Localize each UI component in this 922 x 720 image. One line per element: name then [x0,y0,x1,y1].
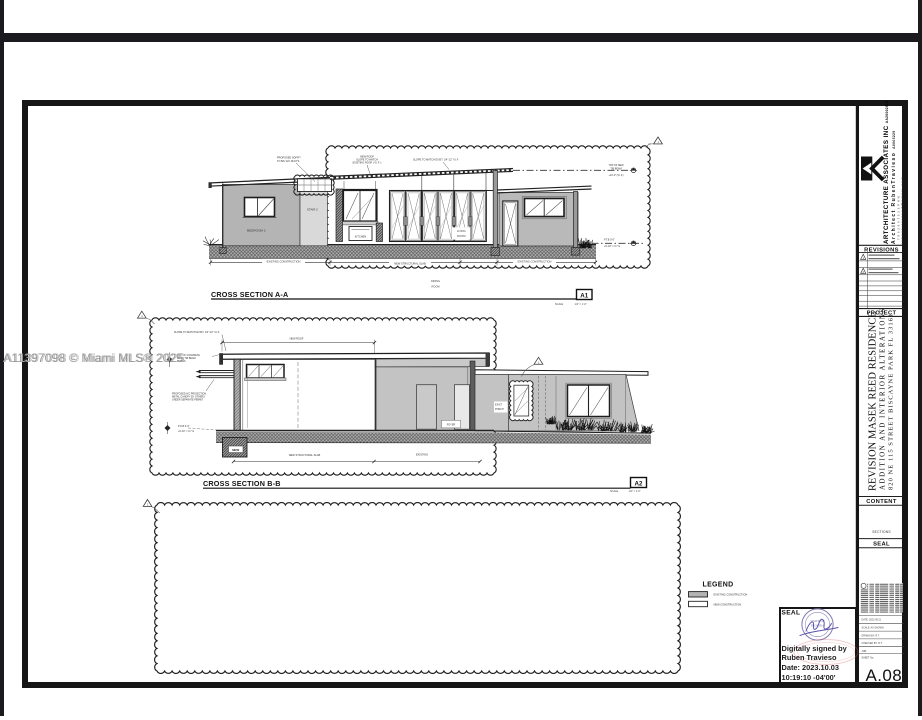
svg-text:JOB:: JOB: [862,650,868,653]
svg-text:NEW: NEW [232,448,239,452]
svg-text:SLOPE TO MATCH EXIST. 1/4":12: SLOPE TO MATCH EXIST. 1/4":12" V.I.F. [413,159,459,162]
svg-text:EXISTING CONSTRUCTION: EXISTING CONSTRUCTION [714,593,748,597]
svg-text:LIVING: LIVING [457,229,466,233]
svg-text:EXISTING: EXISTING [416,452,428,456]
svg-text:KITCHEN: KITCHEN [355,234,367,238]
svg-text:+9'-10" = 0.7 G: +9'-10" = 0.7 G [604,245,620,248]
svg-text:BEDROOM 2: BEDROOM 2 [247,229,266,233]
svg-text:SCALE: AS SHOWN: SCALE: AS SHOWN [862,627,884,630]
svg-text:EXISTING ROOF ( V.I.F. ): EXISTING ROOF ( V.I.F. ) [353,162,382,165]
svg-text:SECTIONS: SECTIONS [872,530,891,534]
svg-text:820 NE 115 STREET BISCAYNE PAR: 820 NE 115 STREET BISCAYNE PARK FL 33161 [888,313,895,490]
svg-text:ROOM: ROOM [457,234,466,238]
svg-text:ARTCHITECTURE ASSOCIATES INC A: ARTCHITECTURE ASSOCIATES INC AA26002974 [883,101,890,244]
svg-text:A.08: A.08 [866,666,903,685]
svg-text:SLOPE TO MATCH EXIST. 1/4":12: SLOPE TO MATCH EXIST. 1/4":12" V.I.F. [174,331,220,334]
svg-text:SHEET No:: SHEET No: [862,657,875,660]
svg-text:ADDITION AND INTERIOR ALTERATI: ADDITION AND INTERIOR ALTERATIONS [879,307,887,490]
svg-text:P.O.B 0'-0": P.O.B 0'-0" [178,425,190,428]
svg-text:TO B/U A/C DUCTS: TO B/U A/C DUCTS [277,160,300,163]
svg-text:SCALE: SCALE [610,490,619,493]
svg-text:A1: A1 [580,292,588,299]
svg-text:UNDER SEPARATE PERMIT: UNDER SEPARATE PERMIT [172,399,204,402]
svg-text:CROSS SECTION A-A: CROSS SECTION A-A [211,290,288,299]
svg-text:EXIST: EXIST [495,404,502,407]
svg-text:EXISTING CONSTRUCTION: EXISTING CONSTRUCTION [267,260,301,264]
svg-text:PORCH: PORCH [495,408,504,411]
svg-text:DINING: DINING [431,279,440,283]
svg-text:CONTENT: CONTENT [866,499,897,505]
svg-text:T/B BEAM: T/B BEAM [610,167,621,170]
svg-text:+9'-10" = 0.7 G: +9'-10" = 0.7 G [178,430,194,433]
svg-text:DATE: 2023.09.21: DATE: 2023.09.21 [862,619,882,622]
svg-text:SEAL: SEAL [873,542,890,548]
svg-text:LEGEND: LEGEND [703,581,734,588]
svg-text:r u b e n t r a v i e s o 7 @: r u b e n t r a v i e s o 7 @ g m a i l … [900,177,904,244]
svg-text:NEW ROOF: NEW ROOF [290,338,304,341]
svg-text:NEW STRUCTURAL SLAB: NEW STRUCTURAL SLAB [394,262,426,266]
svg-text:1/4" = 1'-0": 1/4" = 1'-0" [629,490,641,493]
svg-text:SEAL: SEAL [782,609,801,616]
svg-text:FOYER: FOYER [447,424,456,427]
svg-text:SCALE: SCALE [555,303,564,306]
svg-text:DRAWN BY: R.T.: DRAWN BY: R.T. [862,634,881,637]
svg-text:REVISIONS: REVISIONS [864,247,899,253]
svg-text:REVISION MASEK REED RESIDENCE: REVISION MASEK REED RESIDENCE [868,311,879,491]
svg-text:EXISTING CONSTRUCTION: EXISTING CONSTRUCTION [518,260,552,264]
svg-text:NEW STRUCTURAL SLAB: NEW STRUCTURAL SLAB [289,453,321,457]
svg-text:+10'-0" (V.I.F.): +10'-0" (V.I.F.) [609,174,624,177]
svg-text:A2: A2 [635,480,643,487]
svg-text:P.T.B 0'-0": P.T.B 0'-0" [604,239,615,242]
svg-text:1/4" = 1'-0": 1/4" = 1'-0" [575,303,587,306]
svg-text:CHECKED BY: R.T.: CHECKED BY: R.T. [862,642,883,645]
svg-text:STAIR 2: STAIR 2 [307,208,318,212]
svg-text:CROSS SECTION B-B: CROSS SECTION B-B [203,479,281,488]
svg-text:NEW CONSTRUCTION: NEW CONSTRUCTION [714,602,742,606]
svg-text:ROOM: ROOM [431,285,439,289]
